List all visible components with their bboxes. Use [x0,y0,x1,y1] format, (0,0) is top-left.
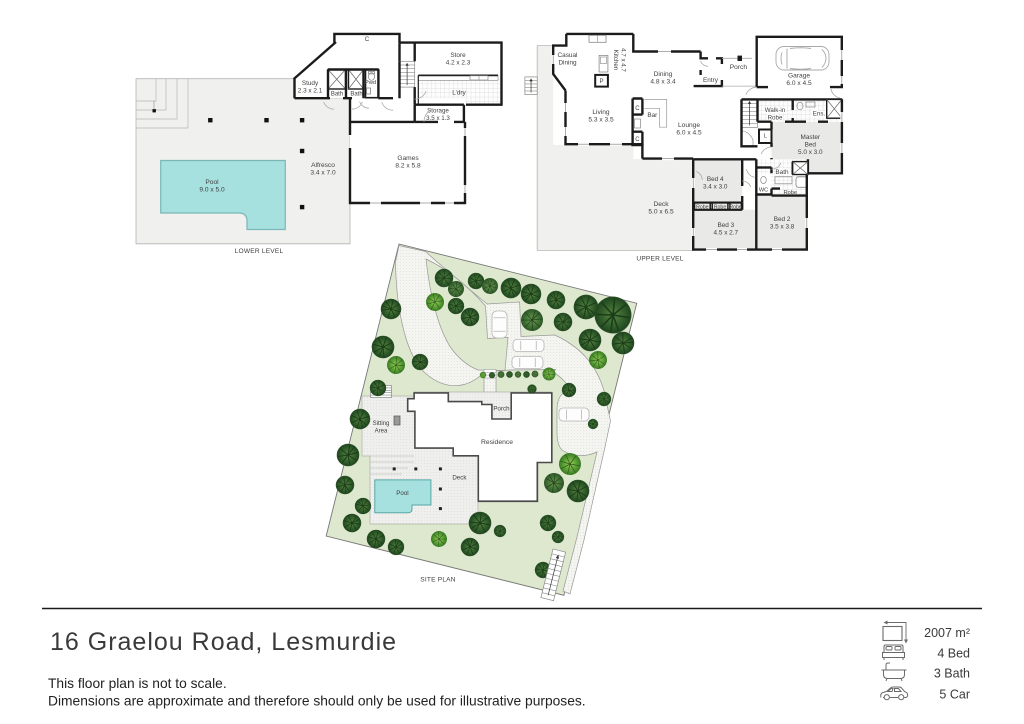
svg-text:5.0 x 6.5: 5.0 x 6.5 [648,209,674,216]
svg-text:C: C [365,36,370,43]
svg-text:Master: Master [801,134,821,141]
svg-text:Bed 2: Bed 2 [774,216,791,223]
svg-text:Dining: Dining [654,71,673,78]
svg-text:Porch: Porch [730,64,748,71]
svg-text:4 Bed: 4 Bed [937,647,970,661]
svg-text:L’dry: L’dry [452,90,466,97]
svg-text:Ens.: Ens. [813,111,826,118]
svg-text:6.0 x 4.5: 6.0 x 4.5 [676,130,702,137]
svg-text:Casual: Casual [558,52,578,59]
svg-text:Study: Study [302,80,319,87]
svg-text:6.0 x 4.5: 6.0 x 4.5 [786,80,812,87]
svg-text:Robe: Robe [714,204,727,210]
svg-text:4.7 x 4.7: 4.7 x 4.7 [620,48,627,72]
svg-text:Storage: Storage [427,108,449,115]
svg-text:5 Car: 5 Car [939,688,970,702]
svg-text:LOWER LEVEL: LOWER LEVEL [235,248,284,255]
svg-text:SITE PLAN: SITE PLAN [420,577,456,584]
svg-text:2007 m²: 2007 m² [924,626,970,640]
svg-text:Bath: Bath [331,92,343,98]
svg-text:Robe: Robe [696,204,709,210]
svg-text:Bath: Bath [775,169,789,176]
svg-text:3.5 x 3.8: 3.5 x 3.8 [770,224,795,231]
svg-text:P: P [599,79,603,85]
svg-text:Dining: Dining [558,60,577,67]
svg-text:Residence: Residence [481,439,513,446]
svg-text:3.5 x 1.3: 3.5 x 1.3 [426,115,450,122]
svg-text:Alfresco: Alfresco [311,162,335,169]
svg-text:Bath: Bath [350,92,362,98]
svg-text:Pool: Pool [396,490,408,497]
svg-text:9.0 x 5.0: 9.0 x 5.0 [199,187,225,194]
svg-text:Bar: Bar [647,112,658,119]
svg-text:Games: Games [397,155,419,162]
svg-text:Porch: Porch [493,406,510,413]
svg-text:4.2 x 2.3: 4.2 x 2.3 [446,60,471,67]
svg-text:3 Bath: 3 Bath [934,667,970,681]
svg-text:16 Graelou Road, Lesmurdie: 16 Graelou Road, Lesmurdie [50,628,397,656]
svg-text:Deck: Deck [452,475,467,482]
svg-text:5.0 x 3.0: 5.0 x 3.0 [798,149,823,156]
svg-text:Pool: Pool [205,179,219,186]
svg-text:Robe: Robe [729,204,742,210]
svg-text:Robe: Robe [768,115,783,122]
svg-text:Living: Living [592,109,610,116]
svg-text:This floor plan is not to scal: This floor plan is not to scale. [48,676,227,691]
svg-text:Kitchen: Kitchen [612,50,619,71]
svg-text:Dimensions are approximate and: Dimensions are approximate and therefore… [48,694,586,709]
svg-text:8.2 x 5.8: 8.2 x 5.8 [395,163,421,170]
svg-text:Area: Area [375,429,388,435]
svg-text:Garage: Garage [788,73,810,80]
svg-text:Bed: Bed [805,142,817,149]
svg-text:Deck: Deck [653,201,669,208]
svg-text:UPPER LEVEL: UPPER LEVEL [636,256,683,263]
svg-text:Robe: Robe [784,190,797,196]
svg-text:2.3 x 2.1: 2.3 x 2.1 [298,88,323,95]
svg-text:Bed 4: Bed 4 [707,176,724,183]
svg-text:C: C [635,137,640,143]
svg-text:4.8 x 3.4: 4.8 x 3.4 [650,79,676,86]
svg-text:Walk-in: Walk-in [765,107,786,114]
svg-text:3.4 x 7.0: 3.4 x 7.0 [310,170,336,177]
svg-text:Sitting: Sitting [373,421,390,427]
svg-text:3.4 x 3.0: 3.4 x 3.0 [703,184,728,191]
svg-text:WC: WC [759,188,768,194]
svg-text:4.5 x 2.7: 4.5 x 2.7 [714,230,739,237]
svg-text:Pwd: Pwd [365,80,376,86]
svg-text:5.3 x 3.5: 5.3 x 3.5 [588,117,614,124]
svg-text:C: C [635,106,640,112]
svg-text:Bed 3: Bed 3 [717,222,734,229]
svg-text:Lounge: Lounge [678,122,700,129]
svg-text:Store: Store [450,52,466,59]
svg-text:Entry: Entry [703,77,719,84]
